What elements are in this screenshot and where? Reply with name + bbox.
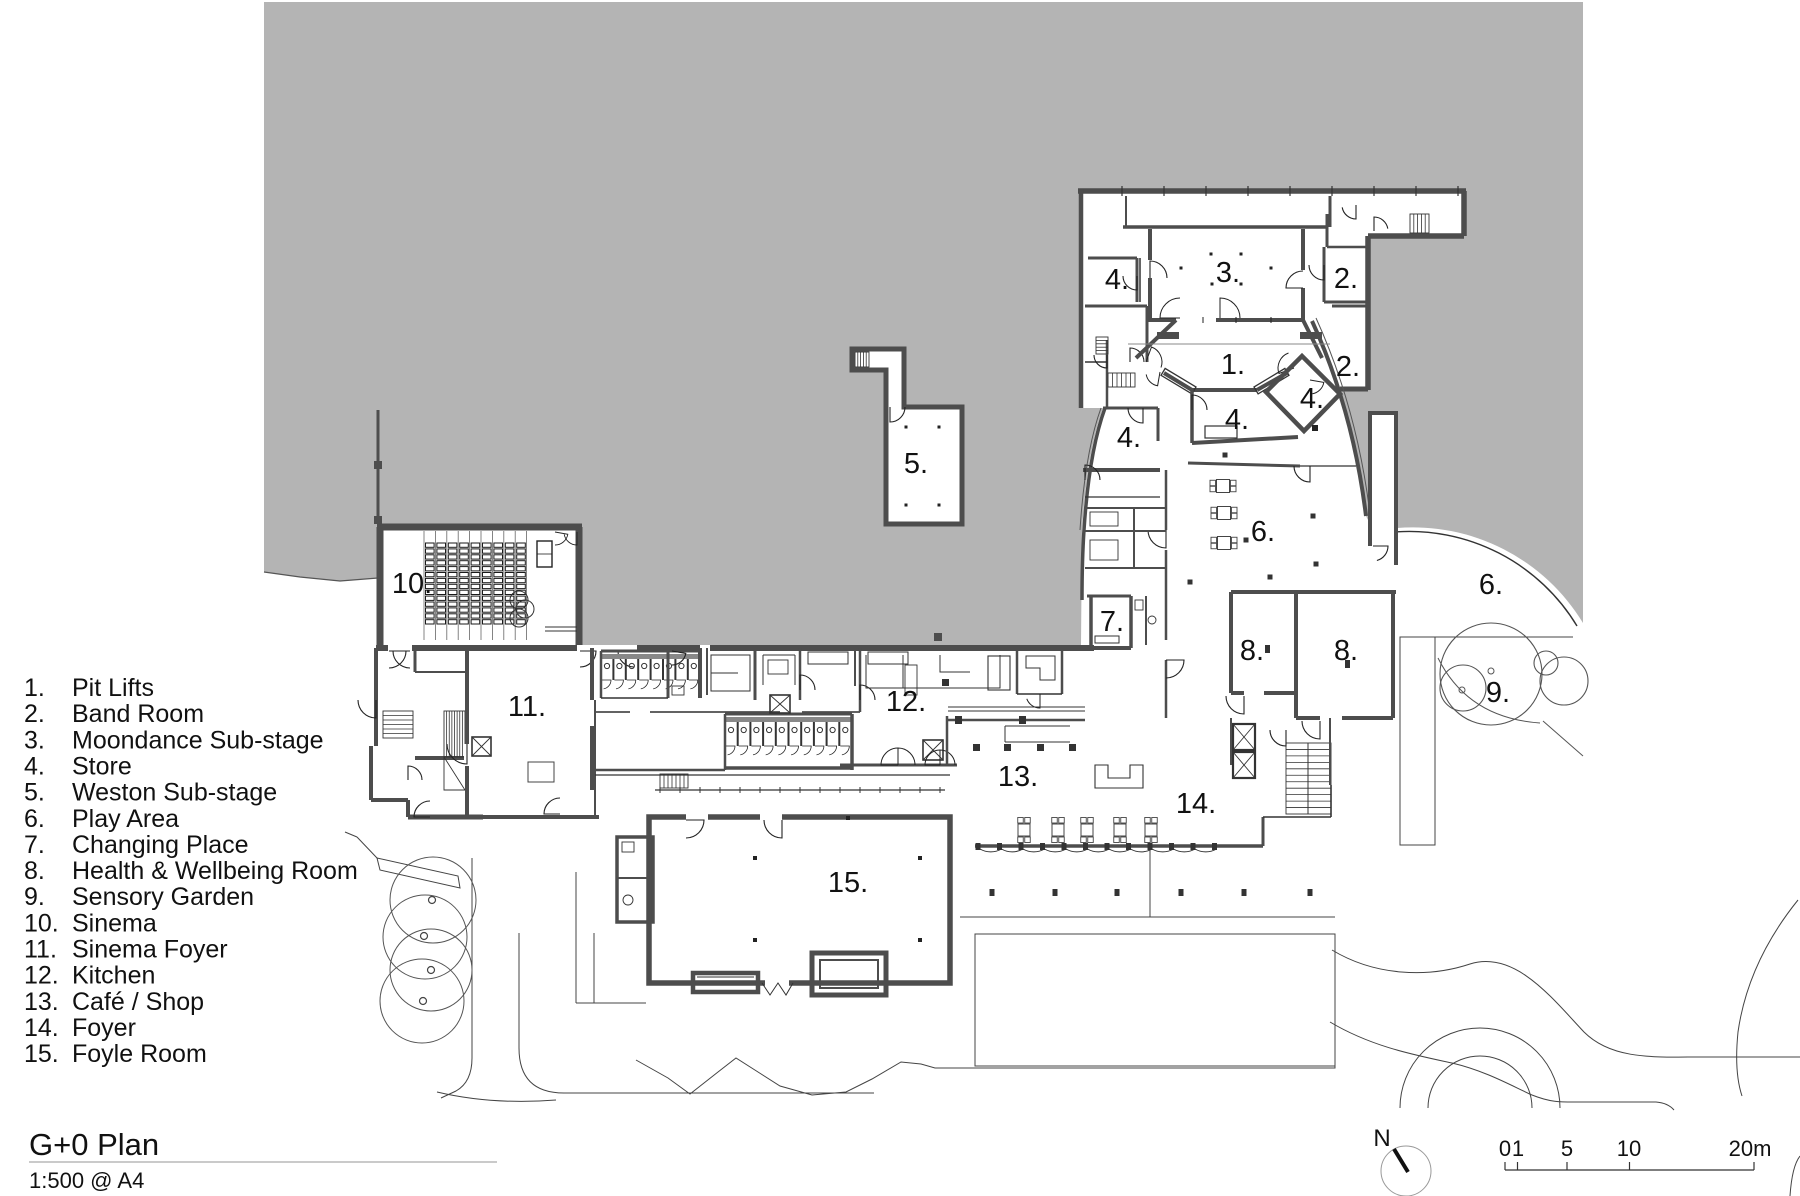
svg-text:11.: 11. xyxy=(508,691,546,723)
svg-text:9.: 9. xyxy=(1486,677,1510,709)
svg-text:1.: 1. xyxy=(1221,349,1245,381)
svg-text:Store: Store xyxy=(72,753,132,781)
svg-text:8.: 8. xyxy=(24,857,45,885)
svg-text:6.: 6. xyxy=(1479,569,1503,601)
svg-text:2.: 2. xyxy=(1336,351,1360,383)
svg-text:12.: 12. xyxy=(886,686,926,718)
svg-text:0: 0 xyxy=(1499,1136,1511,1161)
svg-text:Kitchen: Kitchen xyxy=(72,962,155,990)
svg-text:6.: 6. xyxy=(1251,516,1275,548)
svg-text:3.: 3. xyxy=(24,726,45,754)
svg-text:9.: 9. xyxy=(24,883,45,911)
svg-text:1: 1 xyxy=(1512,1136,1524,1161)
svg-text:12.: 12. xyxy=(24,962,59,990)
svg-text:Band Room: Band Room xyxy=(72,700,204,728)
svg-text:Sinema: Sinema xyxy=(72,909,157,937)
svg-text:5: 5 xyxy=(1561,1136,1573,1161)
svg-text:Foyle Room: Foyle Room xyxy=(72,1040,207,1068)
svg-text:7.: 7. xyxy=(24,831,45,859)
svg-text:4.: 4. xyxy=(24,753,45,781)
svg-text:15.: 15. xyxy=(828,867,868,899)
svg-text:Changing Place: Changing Place xyxy=(72,831,249,859)
svg-text:14.: 14. xyxy=(24,1014,59,1042)
svg-text:1:500 @ A4: 1:500 @ A4 xyxy=(29,1168,144,1193)
svg-text:11.: 11. xyxy=(24,936,57,964)
svg-text:2.: 2. xyxy=(24,700,45,728)
svg-text:20m: 20m xyxy=(1729,1136,1772,1161)
svg-text:1.: 1. xyxy=(24,674,45,702)
svg-text:14.: 14. xyxy=(1176,788,1216,820)
svg-text:7.: 7. xyxy=(1100,606,1124,638)
svg-text:Moondance Sub-stage: Moondance Sub-stage xyxy=(72,726,324,754)
svg-text:4.: 4. xyxy=(1225,404,1249,436)
svg-text:N: N xyxy=(1373,1125,1390,1152)
svg-text:10.: 10. xyxy=(392,568,432,600)
svg-text:G+0 Plan: G+0 Plan xyxy=(29,1127,159,1162)
svg-text:4.: 4. xyxy=(1117,422,1141,454)
svg-text:Weston Sub-stage: Weston Sub-stage xyxy=(72,779,277,807)
svg-text:Sensory Garden: Sensory Garden xyxy=(72,883,254,911)
svg-text:4.: 4. xyxy=(1105,264,1129,296)
svg-text:Play Area: Play Area xyxy=(72,805,179,833)
svg-text:2.: 2. xyxy=(1334,263,1358,295)
svg-text:10: 10 xyxy=(1617,1136,1641,1161)
svg-text:8.: 8. xyxy=(1240,635,1264,667)
svg-text:13.: 13. xyxy=(998,761,1038,793)
svg-text:4.: 4. xyxy=(1300,383,1324,415)
svg-text:3.: 3. xyxy=(1216,257,1240,289)
svg-text:8.: 8. xyxy=(1334,635,1358,667)
svg-text:6.: 6. xyxy=(24,805,45,833)
svg-text:Sinema Foyer: Sinema Foyer xyxy=(72,936,228,964)
svg-text:5.: 5. xyxy=(904,448,928,480)
svg-text:13.: 13. xyxy=(24,988,59,1016)
svg-text:15.: 15. xyxy=(24,1040,59,1068)
svg-text:Health & Wellbeing Room: Health & Wellbeing Room xyxy=(72,857,358,885)
svg-text:Foyer: Foyer xyxy=(72,1014,136,1042)
svg-text:Pit Lifts: Pit Lifts xyxy=(72,674,154,702)
svg-text:Café / Shop: Café / Shop xyxy=(72,988,204,1016)
svg-text:5.: 5. xyxy=(24,779,45,807)
svg-text:10.: 10. xyxy=(24,909,59,937)
